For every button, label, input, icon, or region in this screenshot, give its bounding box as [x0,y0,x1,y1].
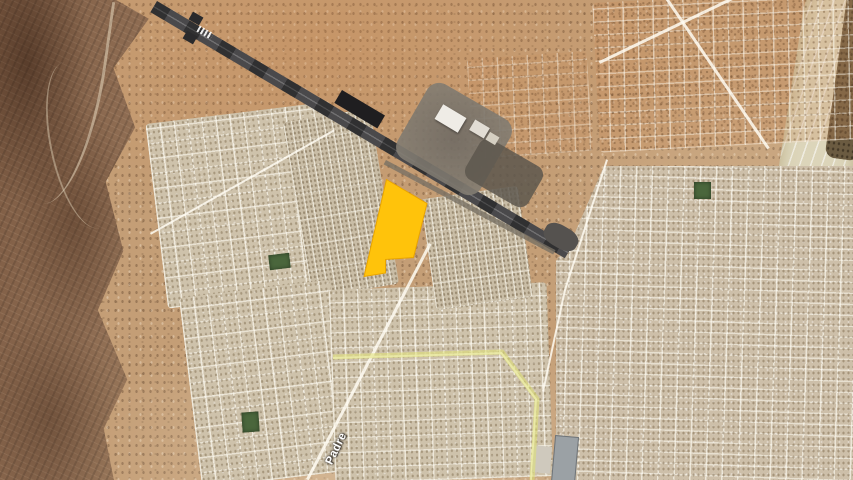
highlighted-parcel-polygon[interactable] [364,180,427,277]
satellite-map-viewport[interactable]: Padre [0,0,853,480]
map-overlay-layer [0,0,853,480]
highway-route-overlay [333,352,537,480]
